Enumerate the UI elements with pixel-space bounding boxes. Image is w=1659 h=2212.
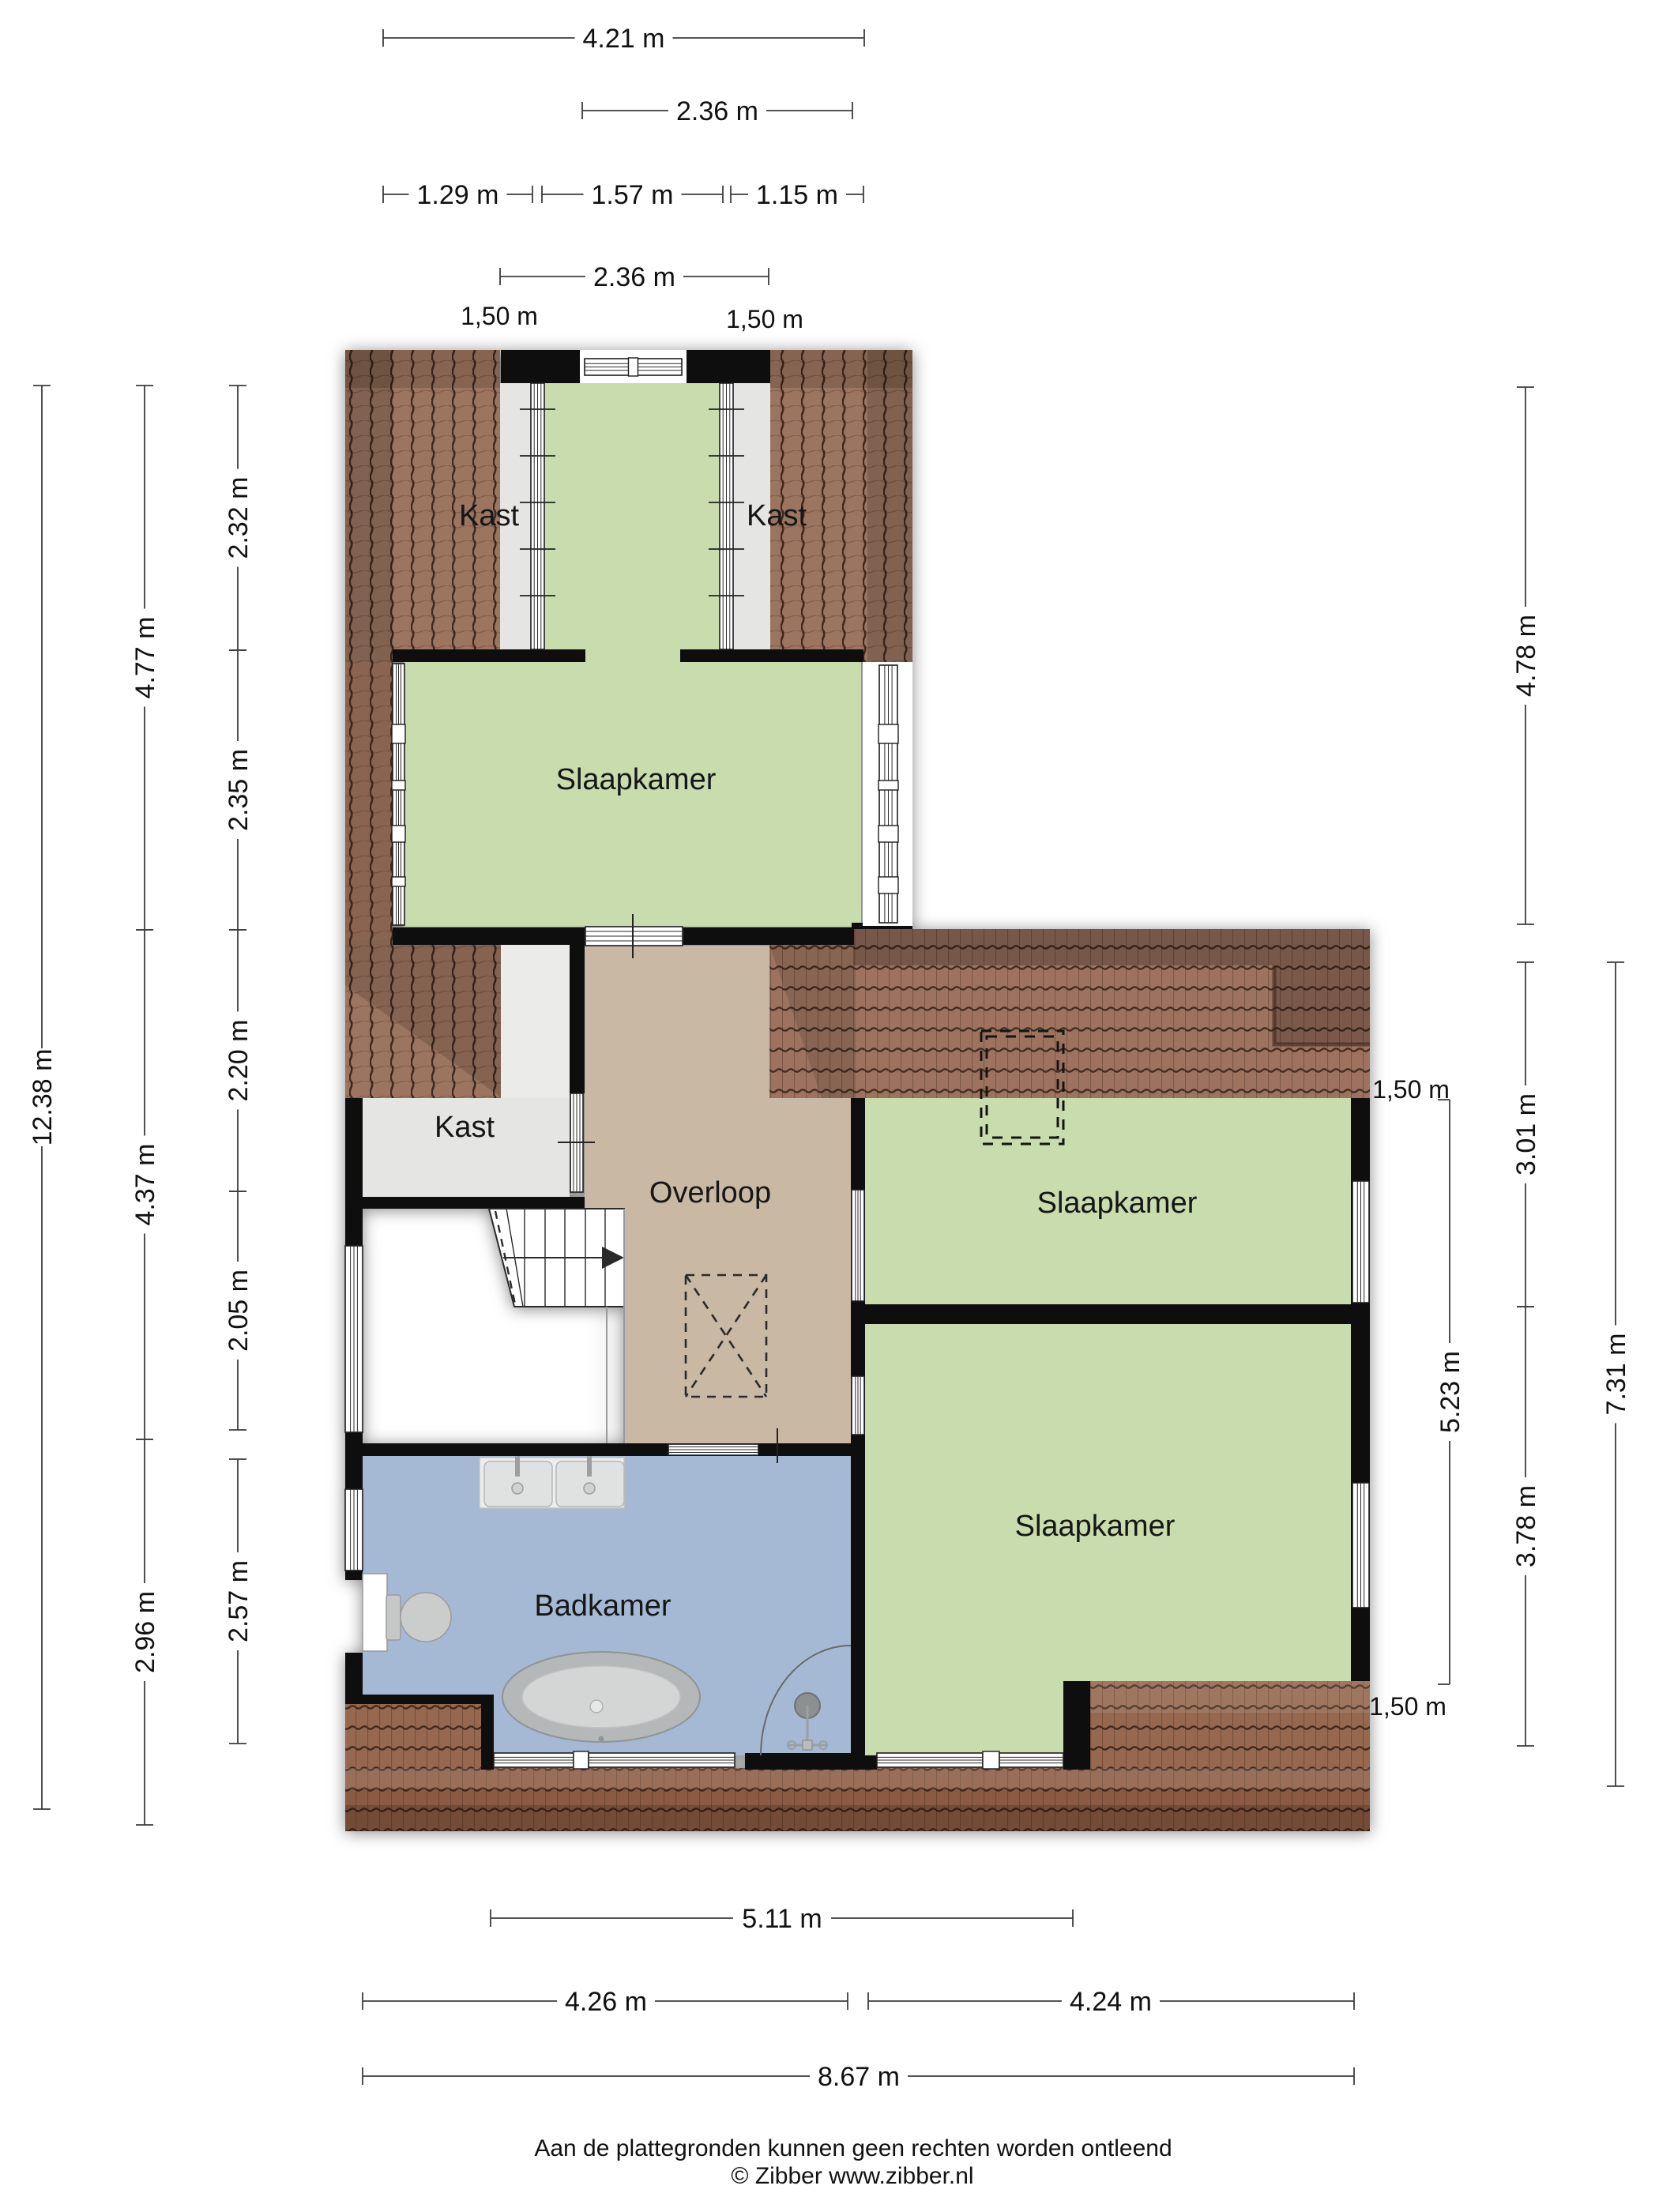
svg-text:2.20 m: 2.20 m [224, 1020, 254, 1102]
svg-text:2.96 m: 2.96 m [130, 1591, 160, 1673]
svg-text:4.26 m: 4.26 m [565, 1987, 647, 2017]
svg-text:3.78 m: 3.78 m [1511, 1485, 1541, 1567]
svg-text:3.01 m: 3.01 m [1511, 1093, 1541, 1176]
svg-text:1,50 m: 1,50 m [1372, 1075, 1450, 1104]
svg-text:4.37 m: 4.37 m [130, 1144, 160, 1226]
svg-text:© Zibber www.zibber.nl: © Zibber www.zibber.nl [731, 2163, 973, 2189]
svg-text:8.67 m: 8.67 m [818, 2062, 900, 2092]
svg-text:2.32 m: 2.32 m [224, 477, 254, 559]
svg-text:5.11 m: 5.11 m [742, 1904, 822, 1934]
svg-text:Kast: Kast [434, 1111, 495, 1144]
svg-text:1.57 m: 1.57 m [592, 180, 674, 210]
svg-text:2.36 m: 2.36 m [593, 262, 675, 292]
svg-text:Aan de plattegronden kunnen ge: Aan de plattegronden kunnen geen rechten… [534, 2135, 1172, 2161]
svg-text:Badkamer: Badkamer [534, 1589, 671, 1623]
svg-text:4.24 m: 4.24 m [1070, 1987, 1152, 2017]
svg-text:4.21 m: 4.21 m [583, 24, 665, 54]
svg-text:1,50 m: 1,50 m [1369, 1692, 1446, 1721]
svg-text:Slaapkamer: Slaapkamer [1037, 1187, 1198, 1220]
svg-text:Kast: Kast [747, 499, 807, 532]
svg-text:Slaapkamer: Slaapkamer [1015, 1510, 1176, 1543]
svg-text:4.78 m: 4.78 m [1511, 615, 1541, 697]
svg-text:1.15 m: 1.15 m [756, 180, 838, 210]
svg-text:Kast: Kast [459, 499, 519, 532]
svg-text:Overloop: Overloop [649, 1176, 771, 1209]
svg-text:Slaapkamer: Slaapkamer [556, 763, 717, 796]
svg-text:4.77 m: 4.77 m [130, 617, 160, 699]
svg-text:5.23 m: 5.23 m [1435, 1351, 1465, 1433]
svg-text:7.31 m: 7.31 m [1601, 1334, 1631, 1416]
svg-text:12.38 m: 12.38 m [28, 1049, 58, 1146]
svg-text:1.29 m: 1.29 m [417, 180, 499, 210]
svg-text:2.36 m: 2.36 m [676, 96, 758, 126]
svg-text:2.57 m: 2.57 m [224, 1560, 254, 1642]
svg-text:2.35 m: 2.35 m [224, 749, 254, 831]
svg-text:1,50 m: 1,50 m [461, 302, 538, 330]
svg-text:1,50 m: 1,50 m [726, 305, 803, 333]
svg-text:2.05 m: 2.05 m [224, 1270, 254, 1352]
